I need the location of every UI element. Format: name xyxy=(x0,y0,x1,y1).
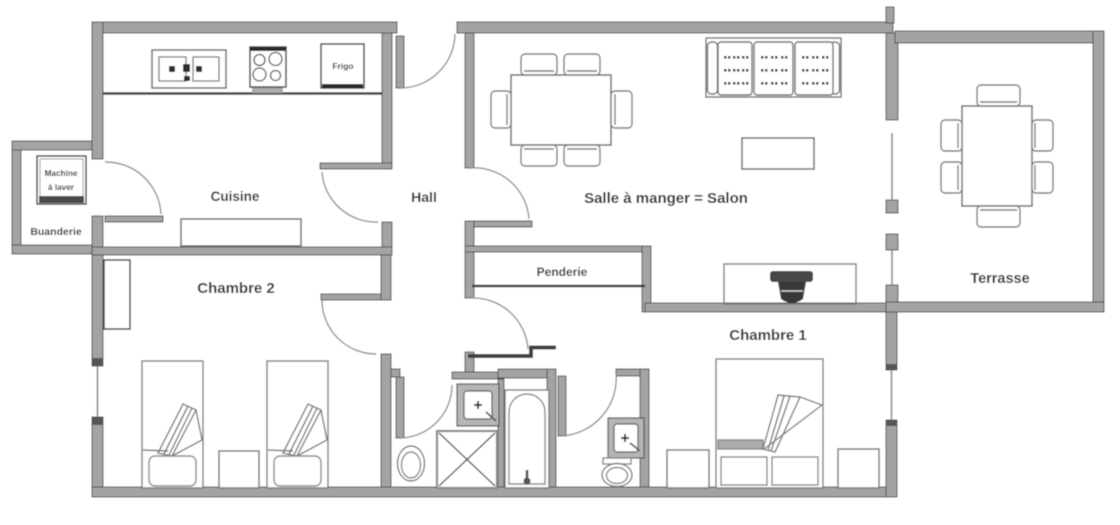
svg-text:Chambre 2: Chambre 2 xyxy=(197,280,275,297)
svg-text:Machine: Machine xyxy=(45,169,78,178)
svg-text:Frigo: Frigo xyxy=(332,61,353,71)
svg-text:Penderie: Penderie xyxy=(537,265,588,279)
svg-text:Hall: Hall xyxy=(411,189,437,205)
svg-text:Terrasse: Terrasse xyxy=(970,271,1029,287)
svg-text:Cuisine: Cuisine xyxy=(211,189,260,204)
svg-text:Chambre 1: Chambre 1 xyxy=(729,327,807,344)
svg-text:Salle à manger = Salon: Salle à manger = Salon xyxy=(584,190,748,207)
svg-text:à laver: à laver xyxy=(48,183,75,192)
svg-text:Buanderie: Buanderie xyxy=(30,226,82,238)
